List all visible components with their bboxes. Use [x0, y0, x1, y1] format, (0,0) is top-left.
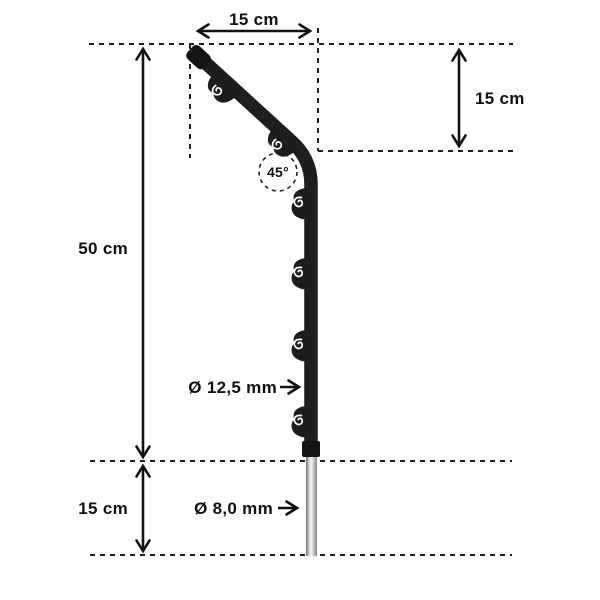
dim-post-diameter-label: Ø 12,5 mm	[157, 379, 277, 396]
wire-clip	[292, 330, 306, 362]
wire-clip	[292, 258, 306, 290]
dim-spike-diameter-label: Ø 8,0 mm	[153, 500, 273, 517]
diagram-canvas: 15 cm 15 cm 50 cm 15 cm Ø 12,5 mm Ø 8,0 …	[0, 0, 600, 600]
wire-clip	[292, 188, 306, 220]
post-bottom-ferrule	[302, 441, 320, 457]
dim-bend-angle-label: 45°	[259, 165, 297, 179]
dim-top-width-label: 15 cm	[196, 11, 312, 28]
dim-head-height-label: 15 cm	[475, 90, 525, 107]
dim-post-height-label: 50 cm	[58, 240, 128, 257]
ground-spike	[306, 452, 317, 556]
dim-spike-length-label: 15 cm	[58, 500, 128, 517]
wire-clip	[292, 406, 306, 438]
reference-dashed-lines	[89, 28, 514, 555]
